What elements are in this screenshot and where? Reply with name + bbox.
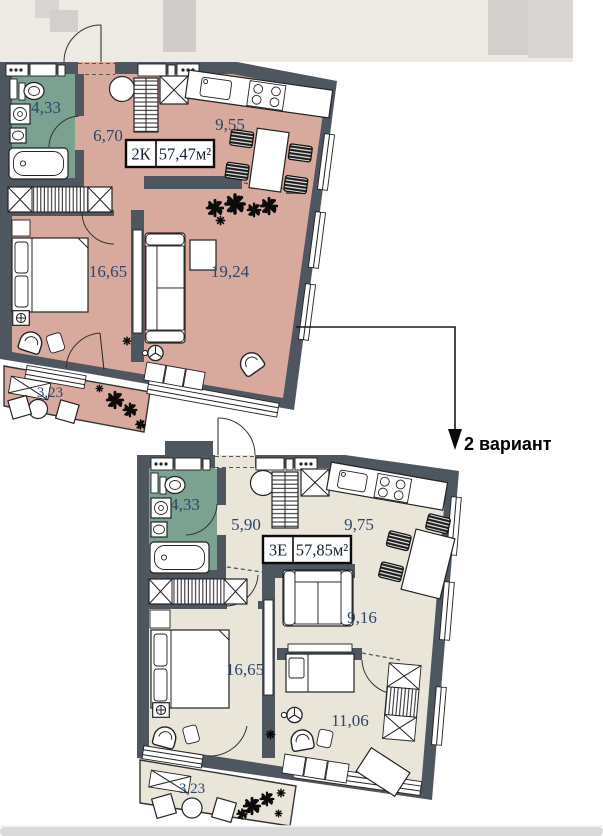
variant-annotation: 2 вариант	[296, 327, 552, 454]
plant-icon	[244, 798, 259, 813]
room-area-label: 16,65	[89, 262, 127, 281]
plan-1: 4,33 6,70 9,55 16,65 19,24 3,23 2К 57,47…	[0, 62, 337, 432]
blurred-block	[163, 0, 196, 52]
star-icon	[275, 810, 282, 817]
room-area-label: 5,90	[231, 515, 261, 534]
rooms-type: 2К	[131, 145, 151, 164]
down-arrow-icon	[448, 429, 462, 450]
star-icon	[216, 216, 224, 224]
entry-door-arc	[218, 418, 255, 455]
room-area-label: 3,23	[179, 781, 205, 797]
room-area-label: 4,33	[31, 98, 61, 117]
room-area-label: 19,24	[211, 262, 250, 281]
room-area-label: 4,33	[170, 495, 200, 514]
floor-plan-image: 4,33 6,70 9,55 16,65 19,24 3,23 2К 57,47…	[0, 0, 603, 836]
entry-opening	[78, 62, 115, 76]
plan-title-badge: 2К 57,47м²	[126, 140, 214, 167]
floor-plan-canvas: 4,33 6,70 9,55 16,65 19,24 3,23 2К 57,47…	[0, 0, 603, 836]
pillow	[15, 242, 28, 273]
star-icon	[96, 385, 103, 392]
plan-2: 4,33 5,90 9,75 9,16 16,65 11,06 3,23 3Е …	[137, 418, 461, 826]
pillow	[289, 658, 304, 678]
plant-icon	[237, 809, 247, 819]
nightstand	[12, 220, 30, 236]
tv-icon	[13, 311, 30, 326]
room-area-label: 9,75	[344, 515, 374, 534]
total-area: 57,47м²	[159, 145, 212, 164]
round-table	[182, 798, 202, 818]
wardrobe	[8, 187, 112, 212]
shelving-unit	[134, 78, 158, 132]
plan-title-badge: 3Е 57,85м²	[263, 536, 351, 563]
wall-shelf	[288, 644, 352, 652]
room-area-label: 11,06	[331, 711, 369, 730]
shelving-unit	[272, 472, 298, 528]
room-area-label: 9,55	[215, 115, 245, 134]
round-table	[29, 400, 48, 419]
tv-icon	[153, 703, 170, 718]
star-icon	[277, 789, 285, 797]
building-corridor	[0, 0, 573, 62]
wardrobe	[149, 579, 247, 604]
total-area: 57,85м²	[296, 541, 349, 560]
stool	[316, 729, 333, 749]
pillow	[154, 634, 167, 666]
blurred-block	[488, 0, 530, 55]
pocket-door-leaf	[264, 600, 273, 695]
plant-icon	[261, 793, 274, 806]
plant-icon	[226, 195, 244, 213]
plant-icon	[136, 420, 145, 429]
blurred-block	[50, 10, 78, 32]
room-area-label: 6,70	[93, 126, 123, 145]
ceiling-light	[110, 77, 135, 102]
vent-shaft	[301, 469, 329, 496]
plant-icon	[124, 404, 137, 417]
plant-icon	[207, 200, 222, 215]
rooms-type: 3Е	[269, 541, 287, 560]
room-area-label: 9,16	[347, 608, 377, 627]
plant-icon	[248, 204, 261, 217]
nightstand	[150, 610, 170, 628]
variant-label: 2 вариант	[464, 434, 552, 454]
living-room-furniture	[283, 570, 353, 626]
wardrobe-tall	[383, 663, 422, 741]
plant-icon	[261, 198, 276, 213]
room-area-label: 3,23	[37, 385, 63, 401]
vent-shaft	[160, 76, 188, 104]
pocket-door-leaf	[133, 230, 142, 333]
blurred-block	[528, 0, 573, 58]
entry-opening	[215, 455, 255, 469]
wall-stub	[165, 441, 213, 456]
stove	[247, 81, 286, 111]
connector-line	[296, 327, 455, 429]
room-area-label: 16,65	[226, 660, 264, 679]
plant-icon	[107, 392, 122, 407]
pillow	[15, 276, 28, 307]
star-icon	[266, 730, 274, 738]
bottom-scrollbar[interactable]	[0, 826, 603, 836]
pillow	[154, 669, 167, 701]
corridor-floor	[0, 0, 573, 62]
star-icon	[123, 337, 131, 345]
